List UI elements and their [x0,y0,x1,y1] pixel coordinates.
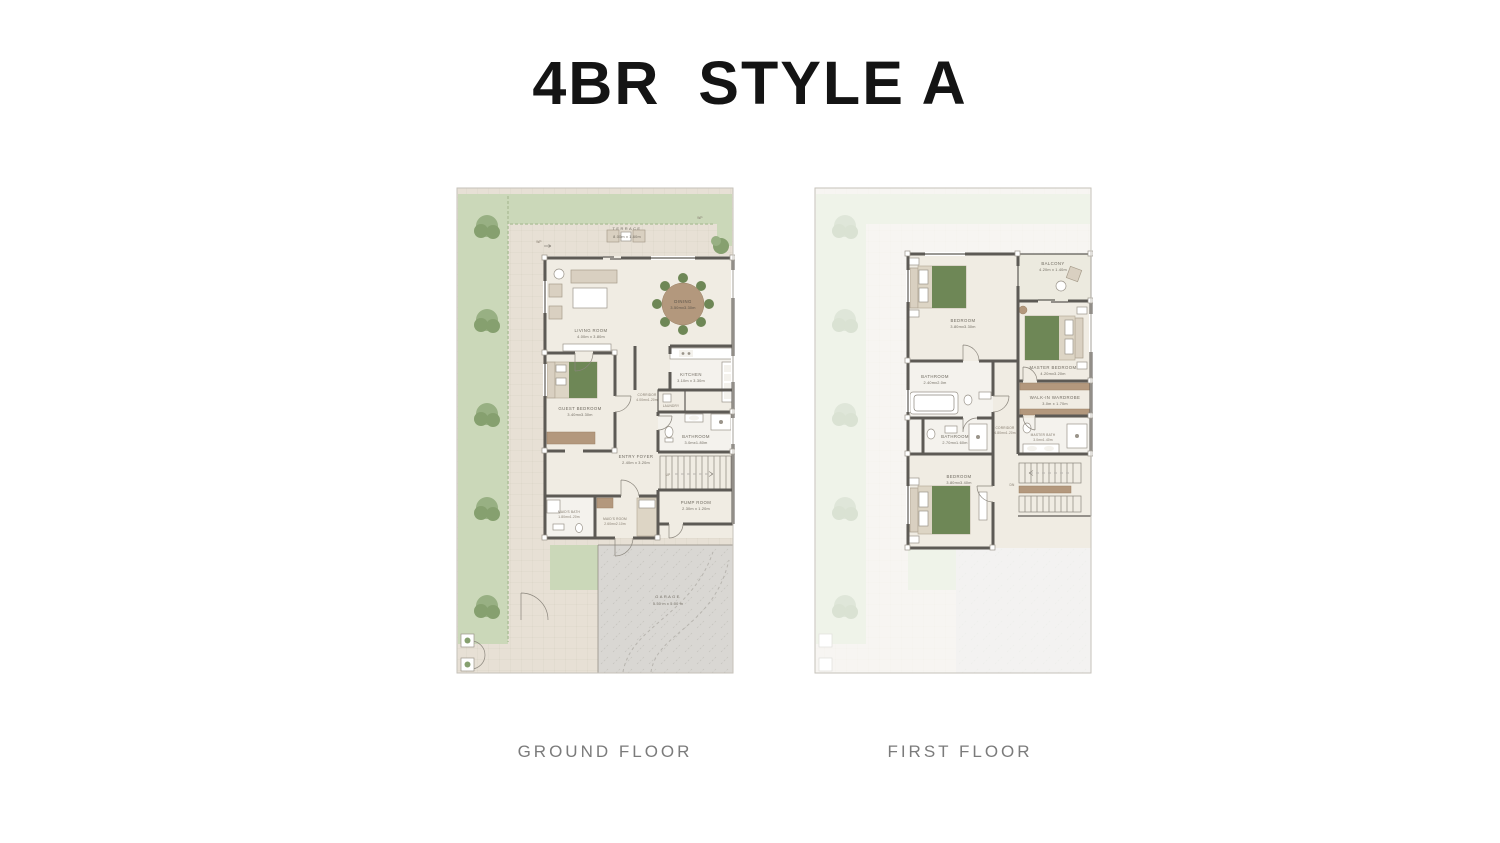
toilet [576,524,583,533]
blanket [932,486,970,534]
nightstand [909,536,919,543]
sofa [571,270,617,283]
room-label-guest-bedroom: GUEST BEDROOM [558,406,601,411]
room-dims-wardrobe: 3.0m x 1.70m [1042,402,1067,406]
garage-slab [598,545,733,673]
basin [979,392,991,399]
room-label-maids-bath: MAID'S BATH [558,510,581,514]
pillow [1065,339,1073,354]
armchair [549,284,562,297]
pillow [639,500,655,508]
room-dims-kitchen: 3.10m x 3.30m [677,379,705,383]
wardrobe [547,432,595,444]
room-dims-dining: 3.50mx3.30m [670,306,695,310]
sink [679,350,693,357]
nightstand [1077,362,1087,369]
page-title: 4BR STYLE A [0,48,1500,118]
first-floor-drawing: BEDROOM 3.80mx3.30m BALCONY 4.20m x 1.40… [813,186,1093,675]
nightstand [909,258,919,265]
room-dims-bedroom2: 3.80mx3.30m [950,325,975,329]
stairs-up-label: UP [666,473,671,477]
room-dims-corridor: 4.00mx1.20m [636,398,658,402]
side-table [1056,281,1066,291]
headboard [547,362,555,398]
room-label-kitchen: KITCHEN [680,372,702,377]
room-label-bathroom-a: BATHROOM [921,374,949,379]
room-label-bedroom3: BEDROOM [946,474,971,479]
room-dims-corridor: 4.80mx1.20m [994,431,1016,435]
room-dims-master-bedroom: 4.20mx3.20m [1040,372,1065,376]
room-dims-garage: 5.50 m x 5.00 m [653,602,683,606]
pillow [556,365,566,372]
room-label-garage: GARAGE [655,594,681,599]
room-label-maids-room: MAID'S ROOM [603,517,627,521]
room-dims-living: 4.00m x 3.80m [577,335,605,339]
toilet [665,427,673,438]
room-label-laundry: LAUNDRY [663,404,680,408]
toilet [964,395,972,405]
room-dims-maids-room: 2.60mx2.10m [604,522,626,526]
chair [1019,306,1027,314]
basin [553,524,564,530]
wp-marker: WP [697,216,703,220]
room-label-master-bath: MASTER BATH [1031,433,1056,437]
room-label-corridor: CORRIDOR [996,426,1015,430]
pillow [919,492,928,507]
pillow [919,270,928,284]
room-label-pump-room: PUMP ROOM [681,500,712,505]
pillow [919,511,928,526]
page: 4BR STYLE A [0,0,1500,843]
dining-table [662,283,704,325]
headboard [910,488,918,532]
room-dims-maids-bath: 1.80mx1.20m [558,515,580,519]
stairs-dn-label: DN [1009,483,1015,487]
tv-console [563,344,611,351]
room-label-entry-foyer: ENTRY FOYER [619,454,654,459]
washer [663,394,671,402]
room-label-balcony: BALCONY [1041,261,1064,266]
blanket [1025,316,1059,360]
blanket [932,266,966,308]
coffee-table [573,288,607,308]
room-dims-terrace: 8.00m x 1.60m [613,235,641,239]
closet [597,498,613,508]
nightstand [1077,307,1087,314]
headboard [1075,318,1083,358]
headboard [910,268,918,308]
room-dims-bedroom3: 3.80mx3.40m [946,481,971,485]
room-dims-master-bath: 3.0mx1.40m [1033,438,1053,442]
room-dims-pump-room: 2.30m x 1.20m [682,507,710,511]
dresser [979,492,987,520]
room-dims-bathroom-b: 2.70mx1.60m [942,441,967,445]
room-dims-entry-foyer: 2.40m x 3.20m [622,461,650,465]
pillow [556,378,566,385]
toilet [927,429,935,439]
railing [1019,486,1071,493]
room-dims-balcony: 4.20m x 1.40m [1039,268,1067,272]
room-dims-bathroom-a: 2.40mx2.0m [924,381,947,385]
nightstand [909,478,919,485]
first-floor-plan: BEDROOM 3.80mx3.30m BALCONY 4.20m x 1.40… [813,186,1093,680]
armchair [549,306,562,319]
side-table [554,269,564,279]
room-label-bathroom-b: BATHROOM [941,434,969,439]
room-dims-bathroom: 3.0mx1.80m [685,441,708,445]
ground-floor-drawing: TERRACE 8.00m x 1.60m LIVING ROOM 4.00m … [455,186,735,675]
room-dims-guest-bedroom: 3.40mx3.30m [567,413,592,417]
pillow [1065,320,1073,335]
nightstand [909,310,919,317]
room-label-terrace: TERRACE [613,226,642,231]
ground-floor-caption: GROUND FLOOR [455,742,755,762]
ground-floor-plan: TERRACE 8.00m x 1.60m LIVING ROOM 4.00m … [455,186,735,680]
room-label-living: LIVING ROOM [574,328,607,333]
room-label-master-bedroom: MASTER BEDROOM [1030,365,1077,370]
room-label-corridor: CORRIDOR [638,393,657,397]
lawn-patch [550,545,598,590]
room-label-bedroom2: BEDROOM [950,318,975,323]
pillow [919,288,928,302]
room-label-bathroom: BATHROOM [682,434,710,439]
basin [945,426,957,433]
blanket [569,362,597,398]
wp-marker: WP [536,240,542,244]
room-label-wardrobe: WALK-IN WARDROBE [1030,395,1081,400]
room-label-dining: DINING [674,299,692,304]
first-floor-caption: FIRST FLOOR [810,742,1110,762]
